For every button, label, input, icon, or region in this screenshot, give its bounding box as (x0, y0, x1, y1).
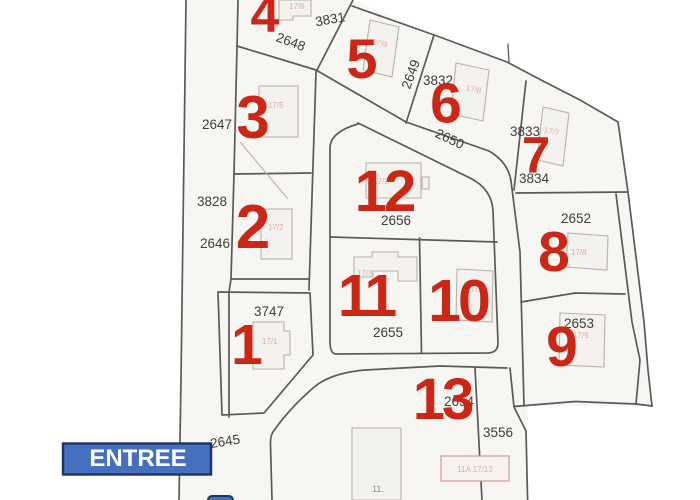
svg-text:6: 6 (430, 72, 462, 136)
svg-text:3556: 3556 (483, 425, 513, 440)
svg-text:8: 8 (538, 220, 570, 284)
svg-text:11: 11 (338, 263, 397, 329)
svg-text:17/6: 17/6 (289, 2, 305, 11)
svg-text:4: 4 (251, 0, 280, 44)
svg-text:2: 2 (236, 193, 270, 262)
svg-text:11.: 11. (372, 484, 384, 494)
svg-text:2647: 2647 (202, 117, 232, 132)
svg-text:13: 13 (413, 367, 473, 432)
svg-text:11A 17/13: 11A 17/13 (457, 465, 493, 474)
svg-text:9: 9 (546, 315, 578, 379)
svg-text:5: 5 (346, 27, 377, 90)
svg-text:1: 1 (231, 313, 263, 377)
svg-text:17/5: 17/5 (268, 101, 284, 110)
svg-text:3828: 3828 (197, 194, 227, 209)
svg-text:10: 10 (428, 268, 489, 334)
svg-text:2646: 2646 (200, 236, 230, 251)
svg-text:3: 3 (236, 84, 269, 151)
svg-text:17/8: 17/8 (571, 248, 587, 257)
svg-text:7: 7 (522, 127, 550, 184)
svg-text:12: 12 (355, 159, 414, 224)
svg-text:17/1: 17/1 (262, 337, 278, 346)
svg-text:17/2: 17/2 (268, 223, 284, 232)
svg-text:ENTREE: ENTREE (89, 445, 186, 472)
